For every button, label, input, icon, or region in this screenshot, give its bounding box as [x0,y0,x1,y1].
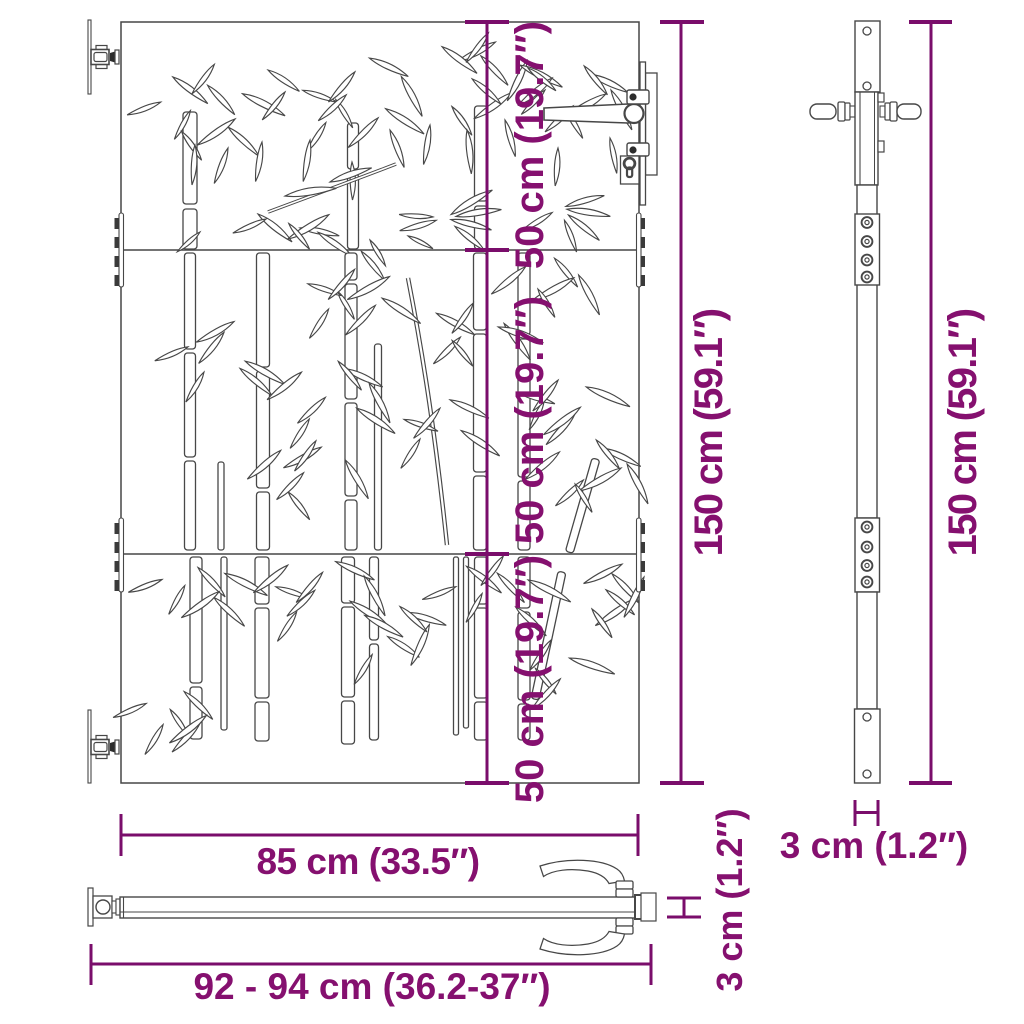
svg-text:50 cm (19.7″): 50 cm (19.7″) [508,21,552,269]
svg-text:50 cm (19.7″): 50 cm (19.7″) [508,296,552,544]
svg-text:50 cm (19.7″): 50 cm (19.7″) [508,555,552,803]
svg-text:92 - 94 cm (36.2-37″): 92 - 94 cm (36.2-37″) [193,966,550,1007]
svg-text:150 cm (59.1″): 150 cm (59.1″) [687,309,731,556]
svg-text:3 cm (1.2″): 3 cm (1.2″) [780,825,968,866]
svg-text:150 cm (59.1″): 150 cm (59.1″) [941,309,985,556]
svg-text:85 cm (33.5″): 85 cm (33.5″) [256,841,479,882]
svg-text:3 cm (1.2″): 3 cm (1.2″) [709,808,750,991]
